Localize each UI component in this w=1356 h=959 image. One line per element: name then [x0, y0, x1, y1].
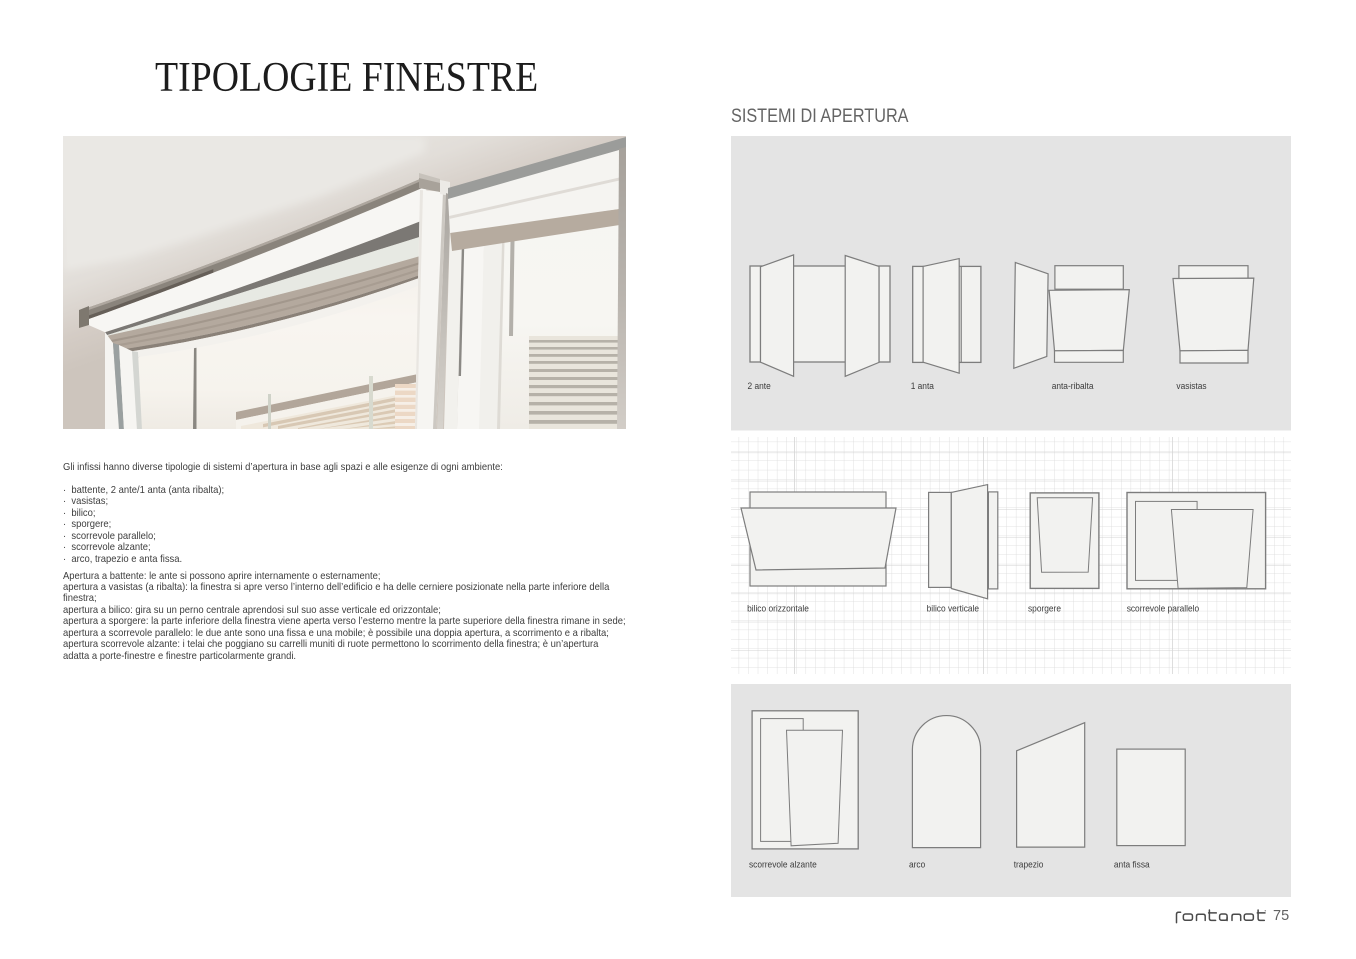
svg-text:anta-ribalta: anta-ribalta: [1052, 381, 1094, 392]
svg-text:anta fissa: anta fissa: [1114, 859, 1150, 870]
svg-text:scorrevole parallelo: scorrevole parallelo: [1127, 603, 1200, 614]
svg-text:sporgere: sporgere: [1028, 603, 1061, 614]
svg-text:bilico verticale: bilico verticale: [927, 603, 980, 614]
svg-text:bilico orizzontale: bilico orizzontale: [747, 603, 809, 614]
svg-text:vasistas: vasistas: [1176, 381, 1207, 392]
svg-text:1 anta: 1 anta: [911, 381, 934, 392]
svg-text:arco: arco: [909, 859, 925, 870]
svg-text:trapezio: trapezio: [1014, 859, 1044, 870]
svg-text:scorrevole alzante: scorrevole alzante: [749, 859, 817, 870]
svg-text:2 ante: 2 ante: [748, 381, 771, 392]
